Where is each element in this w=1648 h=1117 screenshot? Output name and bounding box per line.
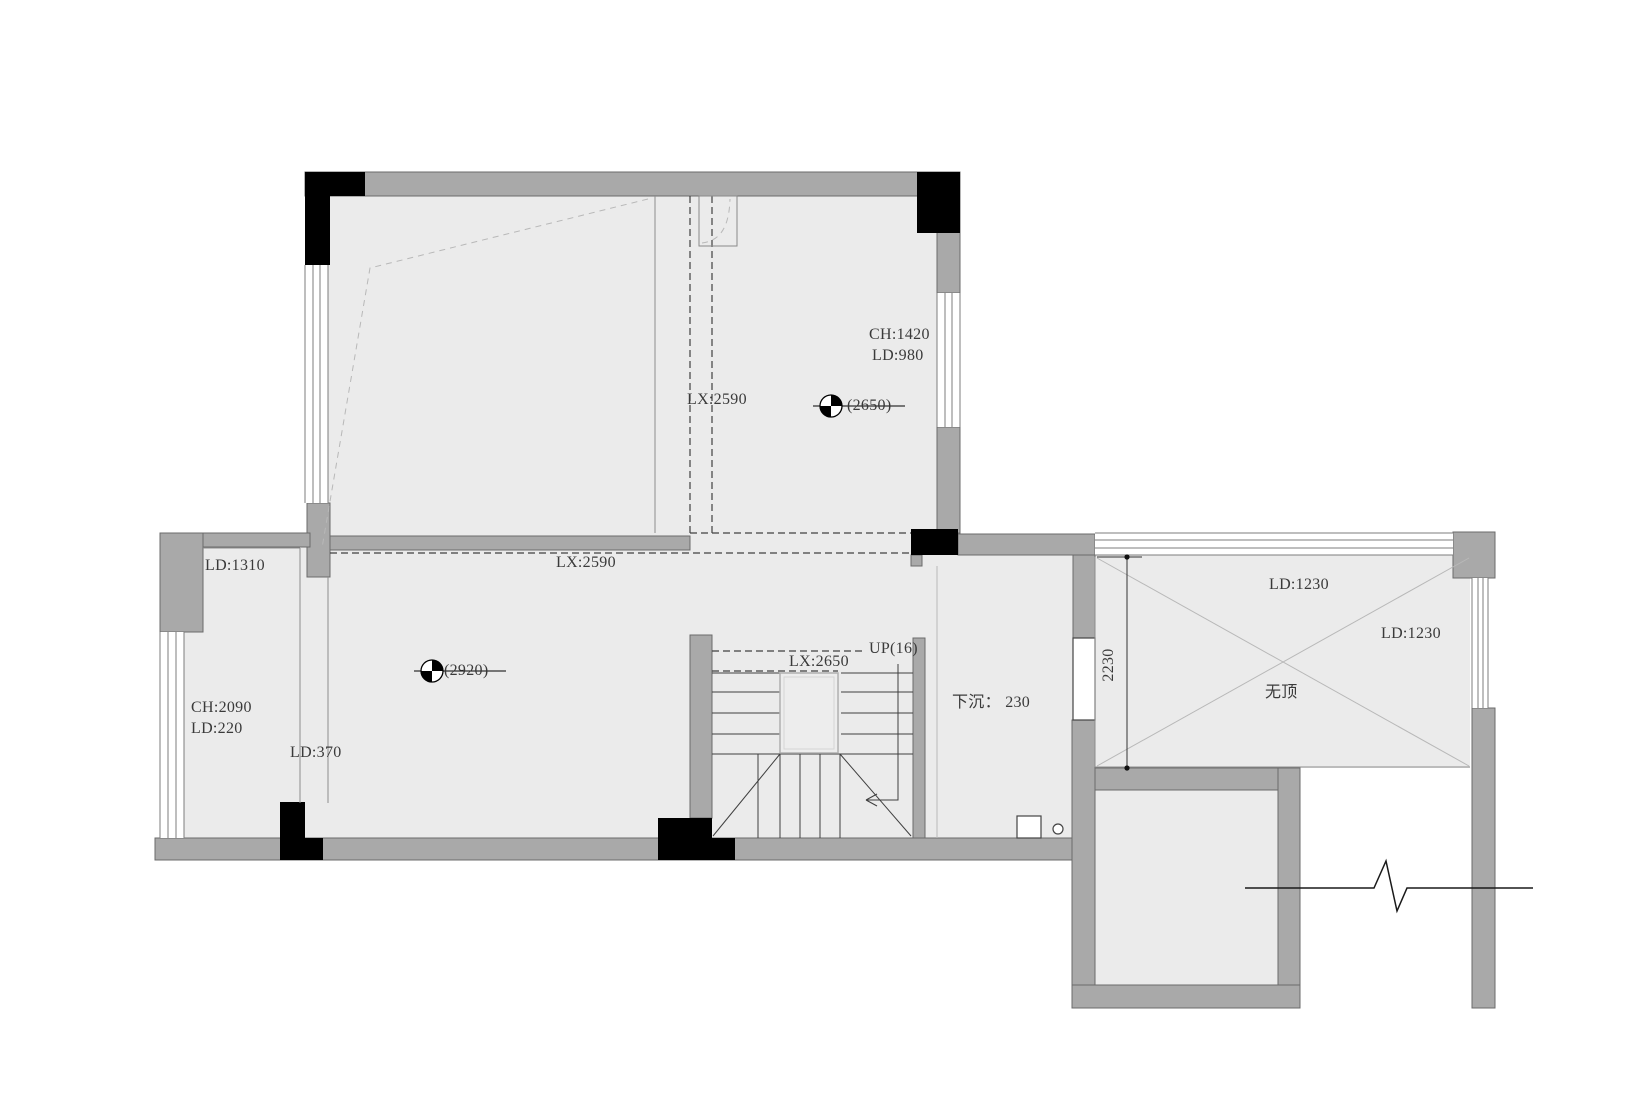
fixture-box — [1017, 816, 1041, 838]
label-beam-lx2590-horizontal: LX:2590 — [556, 555, 616, 571]
window-lower-left — [160, 632, 184, 838]
fixture-drain-circle — [1053, 824, 1063, 834]
stair-void — [780, 673, 838, 753]
label-sunken-230: 下沉： 230 — [952, 695, 1030, 711]
label-ld-1230-right: LD:1230 — [1381, 626, 1441, 642]
label-ld-1310: LD:1310 — [205, 558, 265, 574]
label-beam-lx2650: LX:2650 — [789, 654, 849, 670]
label-elevation-2920: (2920) — [444, 663, 488, 679]
label-ceiling-height-2090: CH:2090 — [191, 700, 252, 716]
window-upper-left — [305, 265, 328, 503]
label-beam-lx2590-vertical: LX:2590 — [687, 392, 747, 408]
label-ld-370: LD:370 — [290, 745, 342, 761]
window-terrace-right — [1472, 578, 1488, 708]
floor-plan: CH:1420 LD:980 (2650) LX:2590 LX:2590 LD… — [0, 0, 1648, 1117]
opening-sunken-to-terrace — [1073, 638, 1095, 720]
label-ld-220: LD:220 — [191, 721, 243, 737]
label-ld-1230-top: LD:1230 — [1269, 577, 1329, 593]
window-upper-right — [937, 293, 960, 427]
label-stair-up-16: UP(16) — [869, 641, 918, 657]
label-elevation-2650: (2650) — [847, 398, 891, 414]
label-no-roof: 无顶 — [1265, 685, 1298, 701]
label-ceiling-height-1420: CH:1420 — [869, 327, 930, 343]
label-ld-980: LD:980 — [872, 348, 924, 364]
label-dimension-2230: 2230 — [1101, 642, 1117, 688]
window-terrace-top — [1095, 533, 1453, 555]
